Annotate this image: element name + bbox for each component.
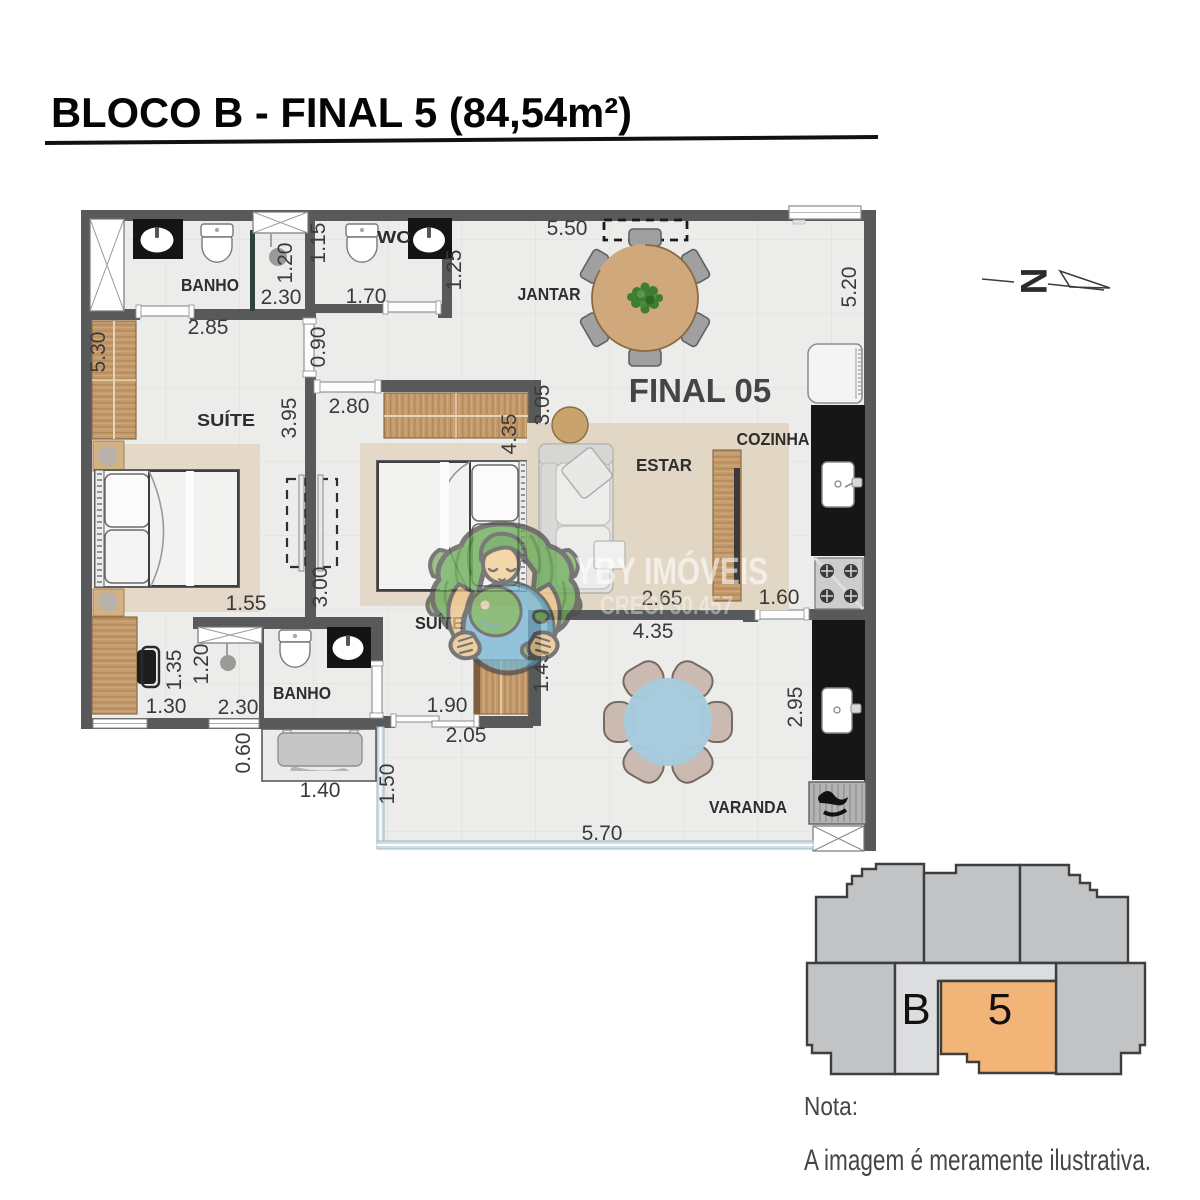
svg-text:5.50: 5.50 [547, 217, 588, 240]
svg-text:3.05: 3.05 [531, 385, 554, 426]
svg-text:B: B [901, 985, 930, 1034]
svg-text:1.35: 1.35 [163, 650, 186, 691]
svg-text:BANHO: BANHO [181, 275, 239, 295]
svg-text:1.50: 1.50 [376, 764, 399, 805]
svg-text:3.00: 3.00 [309, 567, 332, 608]
svg-text:2.85: 2.85 [188, 316, 229, 339]
svg-text:1.55: 1.55 [226, 592, 267, 615]
svg-text:5.30: 5.30 [87, 332, 110, 373]
svg-text:VARANDA: VARANDA [709, 797, 787, 817]
svg-text:2.80: 2.80 [329, 395, 370, 418]
svg-text:5.20: 5.20 [838, 267, 861, 308]
svg-text:4.35: 4.35 [498, 414, 521, 455]
svg-text:1.20: 1.20 [274, 243, 297, 284]
svg-text:2.30: 2.30 [261, 286, 302, 309]
svg-text:4.35: 4.35 [633, 620, 674, 643]
svg-text:5: 5 [988, 985, 1012, 1034]
svg-text:FINAL 05: FINAL 05 [629, 372, 771, 409]
svg-text:1.90: 1.90 [427, 694, 468, 717]
svg-text:1.40: 1.40 [300, 779, 341, 802]
svg-text:0.60: 0.60 [232, 733, 255, 774]
svg-text:COZINHA: COZINHA [737, 429, 810, 449]
svg-text:CRECI 30.457: CRECI 30.457 [600, 590, 733, 620]
svg-text:Nota:: Nota: [804, 1091, 858, 1121]
svg-text:2.05: 2.05 [446, 724, 487, 747]
svg-text:BANHO: BANHO [273, 683, 331, 703]
svg-text:1.15: 1.15 [307, 223, 330, 264]
svg-text:3.95: 3.95 [278, 398, 301, 439]
svg-text:5.70: 5.70 [582, 822, 623, 845]
svg-text:1.30: 1.30 [146, 695, 187, 718]
svg-text:YBY IMÓVEIS: YBY IMÓVEIS [575, 549, 768, 593]
svg-text:JANTAR: JANTAR [518, 284, 581, 304]
svg-text:2.95: 2.95 [784, 687, 807, 728]
svg-text:BLOCO B - FINAL 5 (84,54m²): BLOCO B - FINAL 5 (84,54m²) [51, 89, 632, 136]
svg-text:1.25: 1.25 [443, 250, 466, 291]
svg-text:N: N [1013, 268, 1054, 295]
svg-text:2.30: 2.30 [218, 696, 259, 719]
svg-text:1.20: 1.20 [190, 644, 213, 685]
svg-text:0.90: 0.90 [307, 327, 330, 368]
svg-text:ESTAR: ESTAR [636, 455, 692, 475]
svg-text:1.70: 1.70 [346, 285, 387, 308]
svg-text:WC: WC [377, 227, 411, 247]
svg-text:SUÍTE: SUÍTE [197, 409, 255, 430]
svg-text:A imagem é meramente ilustrati: A imagem é meramente ilustrativa. [804, 1144, 1151, 1177]
